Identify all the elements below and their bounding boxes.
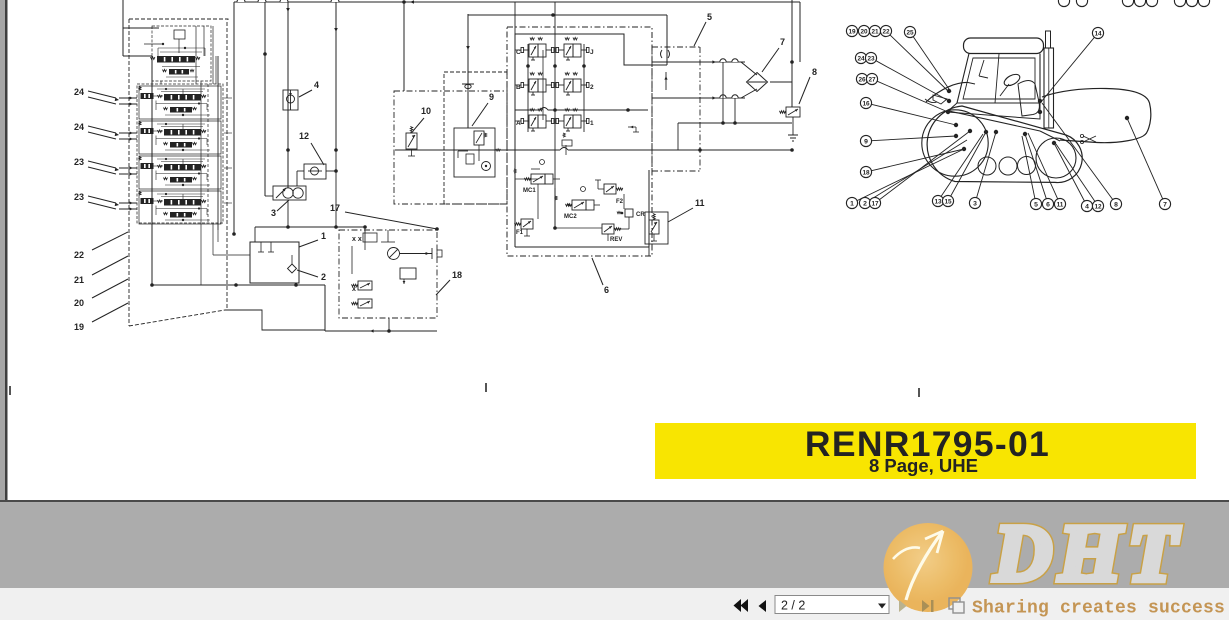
svg-text:4: 4	[314, 80, 319, 90]
svg-text:4: 4	[1085, 203, 1089, 210]
svg-text:17: 17	[330, 203, 340, 213]
svg-text:2 / 2: 2 / 2	[781, 599, 805, 613]
svg-text:24: 24	[74, 122, 84, 132]
svg-text:24: 24	[857, 55, 865, 62]
svg-text:21: 21	[74, 275, 84, 285]
svg-text:23: 23	[74, 192, 84, 202]
svg-text:19: 19	[848, 28, 856, 35]
svg-text:21: 21	[871, 28, 879, 35]
svg-text:5: 5	[707, 12, 712, 22]
svg-text:14: 14	[1094, 30, 1102, 37]
svg-text:F2: F2	[616, 199, 624, 205]
svg-text:2: 2	[321, 272, 326, 282]
svg-text:15: 15	[944, 198, 952, 205]
svg-text:x: x	[352, 286, 356, 293]
svg-text:J: J	[590, 49, 594, 56]
svg-text:26: 26	[858, 76, 866, 83]
svg-text:12: 12	[1094, 203, 1102, 210]
svg-text:DHT: DHT	[993, 510, 1184, 598]
svg-text:1: 1	[590, 120, 594, 127]
svg-text:22: 22	[882, 28, 890, 35]
svg-text:3: 3	[973, 200, 977, 207]
svg-text:8: 8	[1114, 201, 1118, 208]
svg-text:6: 6	[604, 285, 609, 295]
svg-text:1: 1	[850, 200, 854, 207]
svg-text:x x: x x	[352, 236, 362, 243]
svg-text:9: 9	[864, 138, 868, 145]
svg-text:9: 9	[489, 92, 494, 102]
svg-text:5: 5	[1034, 201, 1038, 208]
svg-text:27: 27	[868, 76, 876, 83]
svg-text:2: 2	[863, 200, 867, 207]
svg-text:10: 10	[421, 106, 431, 116]
svg-text:18: 18	[862, 169, 870, 176]
svg-text:11: 11	[1057, 201, 1064, 208]
svg-text:F1: F1	[516, 230, 524, 236]
svg-text:1: 1	[321, 231, 326, 241]
svg-text:19: 19	[74, 322, 84, 332]
svg-text:22: 22	[74, 250, 84, 260]
svg-text:2: 2	[590, 84, 594, 91]
svg-text:MC1: MC1	[523, 188, 536, 194]
svg-text:23: 23	[867, 55, 875, 62]
svg-text:25: 25	[906, 29, 914, 36]
svg-text:11: 11	[695, 198, 705, 208]
svg-text:7: 7	[1163, 201, 1167, 208]
svg-text:24: 24	[74, 87, 84, 97]
svg-text:REV: REV	[610, 237, 622, 243]
svg-text:23: 23	[74, 157, 84, 167]
svg-text:8: 8	[812, 67, 817, 77]
svg-text:8 Page, UHE: 8 Page, UHE	[869, 455, 978, 476]
svg-text:20: 20	[860, 28, 868, 35]
svg-text:6: 6	[1046, 201, 1050, 208]
svg-text:Sharing creates success: Sharing creates success	[972, 599, 1225, 619]
svg-text:20: 20	[74, 298, 84, 308]
svg-text:7: 7	[780, 37, 785, 47]
svg-text:CR: CR	[636, 212, 645, 218]
svg-text:18: 18	[452, 270, 462, 280]
svg-text:3: 3	[271, 208, 276, 218]
svg-text:17: 17	[871, 200, 879, 207]
svg-text:13: 13	[934, 198, 942, 205]
svg-text:12: 12	[299, 131, 309, 141]
svg-text:MC2: MC2	[564, 214, 577, 220]
svg-text:16: 16	[862, 100, 870, 107]
